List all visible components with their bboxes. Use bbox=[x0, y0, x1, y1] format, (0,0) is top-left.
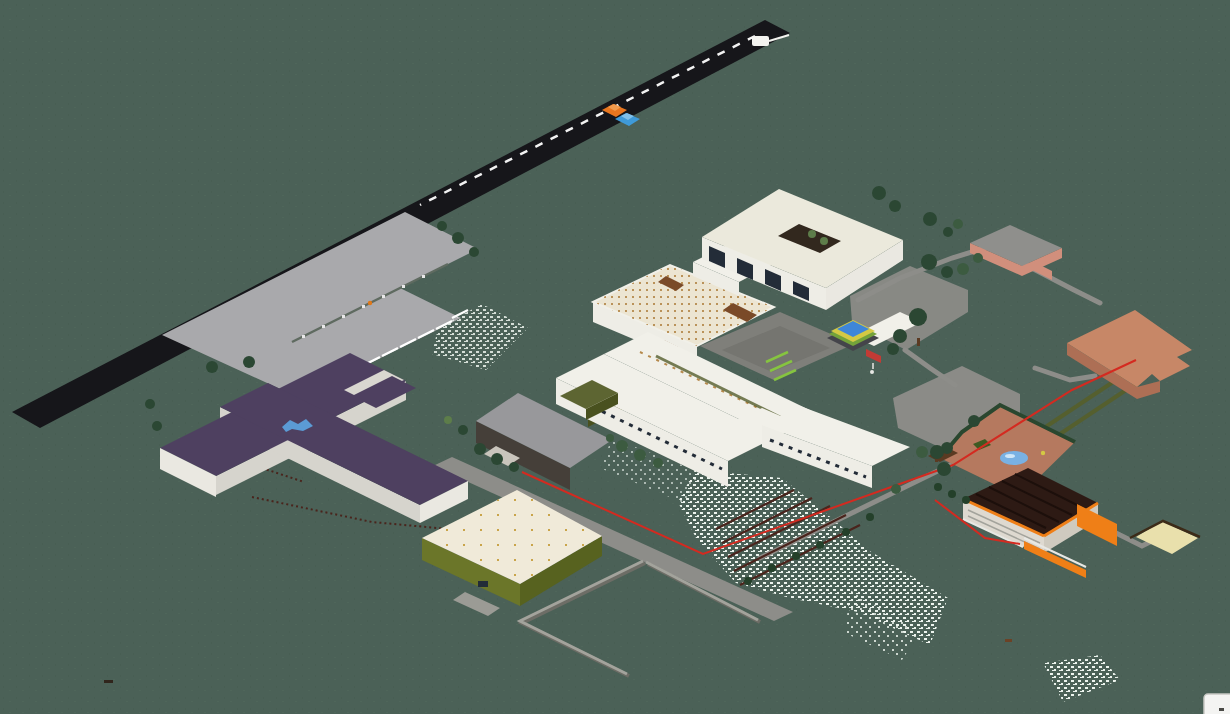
pond-highlight bbox=[1005, 454, 1015, 458]
tree bbox=[474, 443, 486, 455]
tree bbox=[206, 361, 218, 373]
tree bbox=[916, 446, 928, 458]
tree bbox=[152, 421, 162, 431]
tree bbox=[458, 425, 468, 435]
tree bbox=[437, 221, 447, 231]
card-mark bbox=[1219, 708, 1224, 711]
bush bbox=[866, 513, 874, 521]
tree bbox=[941, 266, 953, 278]
small-lamp bbox=[870, 370, 874, 374]
map-canvas[interactable] bbox=[0, 0, 1230, 714]
tree bbox=[887, 343, 899, 355]
tree bbox=[889, 200, 901, 212]
bush bbox=[934, 483, 942, 491]
tree bbox=[930, 445, 944, 459]
map-stage bbox=[0, 0, 1230, 714]
pond bbox=[1000, 451, 1028, 465]
ground-speck bbox=[1005, 639, 1012, 642]
tree bbox=[606, 434, 614, 442]
tree bbox=[616, 440, 628, 452]
tree bbox=[891, 484, 901, 494]
bush bbox=[816, 541, 824, 549]
bush bbox=[744, 577, 752, 585]
tree bbox=[921, 254, 937, 270]
bush bbox=[948, 490, 956, 498]
tree bbox=[452, 232, 464, 244]
tree bbox=[872, 186, 886, 200]
tree bbox=[469, 247, 479, 257]
tree bbox=[145, 399, 155, 409]
tree bbox=[491, 453, 503, 465]
tree bbox=[909, 308, 927, 326]
tree bbox=[937, 462, 951, 476]
tree bbox=[893, 329, 907, 343]
tree bbox=[634, 449, 646, 461]
tree bbox=[243, 356, 255, 368]
bush bbox=[768, 564, 776, 572]
tree bbox=[973, 253, 983, 263]
corner-overlay-card[interactable] bbox=[1204, 694, 1230, 714]
tree bbox=[953, 219, 963, 229]
tree bbox=[968, 415, 980, 427]
bush bbox=[792, 552, 800, 560]
tree bbox=[444, 416, 452, 424]
atrium-tree bbox=[808, 230, 816, 238]
garden-lamp bbox=[1041, 451, 1045, 455]
ground-speck bbox=[104, 680, 113, 683]
tree bbox=[957, 263, 969, 275]
bush bbox=[962, 496, 970, 504]
tree bbox=[943, 227, 953, 237]
bush bbox=[842, 528, 850, 536]
tree bbox=[653, 458, 663, 468]
atrium-tree bbox=[820, 237, 828, 245]
dock-door bbox=[478, 581, 488, 587]
tree bbox=[923, 212, 937, 226]
card-body[interactable] bbox=[1204, 694, 1230, 714]
tree bbox=[509, 462, 519, 472]
truck-body bbox=[752, 36, 769, 46]
tree-trunk bbox=[917, 338, 920, 346]
parking-lamp bbox=[368, 301, 372, 305]
